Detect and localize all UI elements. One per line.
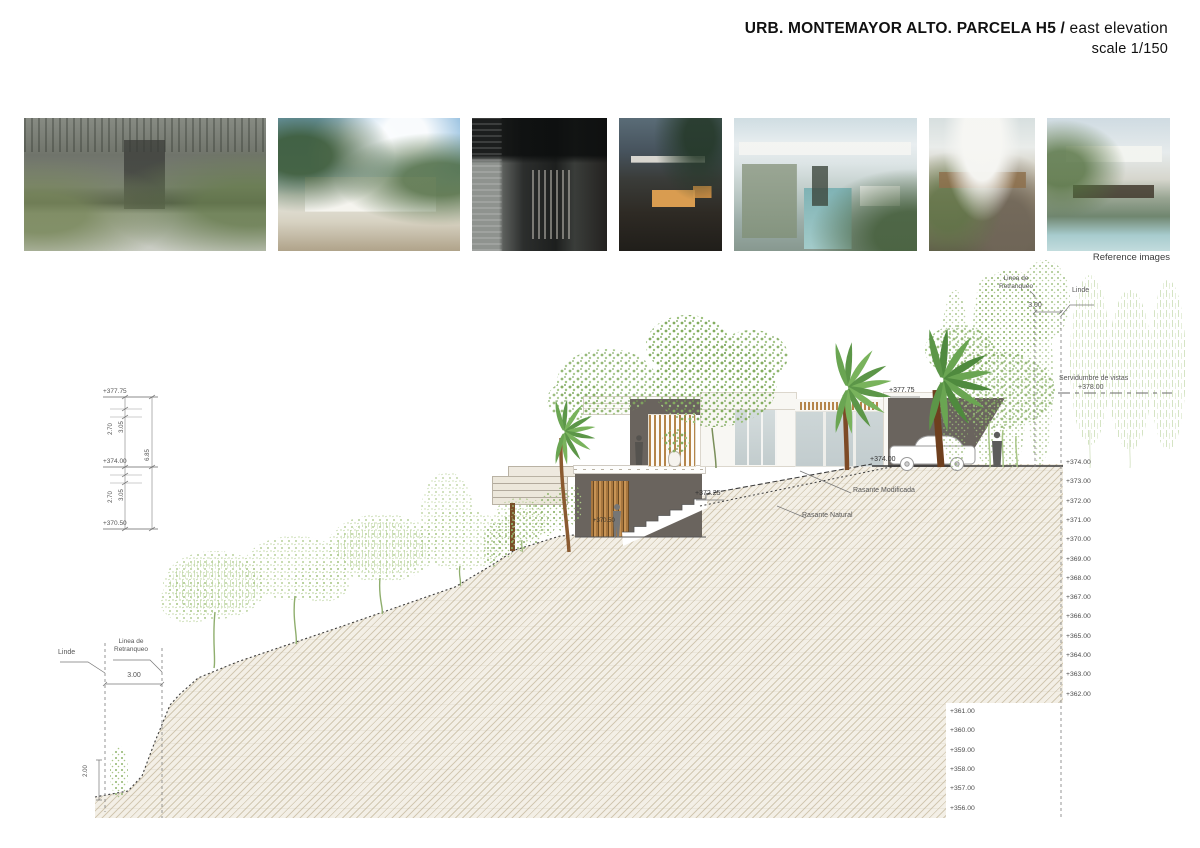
elevation-mark: +362.00	[1066, 691, 1091, 698]
reference-image-courtyard-pergola-entrance	[24, 118, 266, 251]
elevation-mark: +358.00	[950, 766, 975, 773]
dim-2-70-upper: 2.70	[108, 423, 114, 435]
tree-height-dimension: 2.00	[83, 765, 89, 777]
reference-caption: Reference images	[1093, 252, 1170, 263]
project-name: URB. MONTEMAYOR ALTO. PARCELA H5	[745, 20, 1056, 37]
boundary-trees	[1070, 275, 1186, 468]
rasante-natural-label: Rasante Natural	[802, 512, 853, 519]
elevation-mark: +366.00	[1066, 613, 1091, 620]
elevation-mark: +361.00	[950, 708, 975, 715]
dim-2-70-lower: 2.70	[108, 491, 114, 503]
linde-label-top: Linde	[1072, 287, 1089, 294]
drawing-sheet: URB. MONTEMAYOR ALTO. PARCELA H5 / east …	[0, 0, 1200, 848]
view-name: east elevation	[1070, 20, 1168, 37]
timber-slat-door	[591, 481, 629, 537]
reference-image-white-pavilion-palms	[278, 118, 460, 251]
retranqueo-label-top: Linea deRetranqueo	[982, 275, 1050, 291]
level-370-50-door: +370.50	[593, 518, 615, 524]
plant-pot	[668, 451, 681, 467]
servidumbre-level: +378.00	[1078, 384, 1104, 391]
elevation-mark: +374.00	[1066, 459, 1091, 466]
dim-3-05-lower: 3.05	[119, 489, 125, 501]
elevation-mark: +372.00	[1066, 498, 1091, 505]
reference-image-curved-roof-pool-villa	[1047, 118, 1170, 251]
retranqueo-label-bottom: Linea deRetranqueo	[100, 638, 162, 654]
chain-level-bottom: +370.50	[103, 520, 127, 527]
figure-right	[992, 432, 1002, 467]
elevation-mark: +357.00	[950, 785, 975, 792]
elevation-label-background	[946, 703, 1064, 820]
deck-support-post	[510, 503, 515, 551]
chain-level-top: +377.75	[103, 388, 127, 395]
cantilever-deck-lower-slab	[492, 476, 568, 505]
elevation-mark: +371.00	[1066, 517, 1091, 524]
dark-roof-band	[630, 399, 702, 415]
setback-dimension-top: 3.00	[1022, 302, 1048, 309]
dim-3-05-upper: 3.05	[119, 421, 125, 433]
elevation-mark: +356.00	[950, 805, 975, 812]
level-377-75: +377.75	[889, 387, 915, 394]
level-372-25: +372.25	[695, 490, 721, 497]
setback-dimension-bottom: 3.00	[118, 672, 150, 679]
rasante-modificada-label: Rasante Modificada	[853, 487, 915, 494]
elevation-mark: +364.00	[1066, 652, 1091, 659]
elevation-mark: +373.00	[1066, 478, 1091, 485]
elevation-mark: +369.00	[1066, 556, 1091, 563]
elevation-mark: +365.00	[1066, 633, 1091, 640]
reference-image-timber-house-dusk	[619, 118, 722, 251]
elevation-mark: +367.00	[1066, 594, 1091, 601]
elevation-mark: +359.00	[950, 747, 975, 754]
timber-transom-slats	[800, 402, 878, 410]
dim-6-85-total: 6.85	[145, 449, 151, 461]
carport-dark-roof	[888, 398, 1008, 467]
reference-image-stone-wall-pool-car	[734, 118, 917, 251]
reference-image-curved-roof-garden	[929, 118, 1035, 251]
reference-image-dark-stone-entrance	[472, 118, 607, 251]
elevation-mark: +360.00	[950, 727, 975, 734]
elevation-mark: +370.00	[1066, 536, 1091, 543]
glazed-door-center	[735, 410, 777, 465]
level-374: +374.00	[870, 456, 896, 463]
servidumbre-label: Servidumbre de vistas	[1059, 375, 1128, 382]
cypress-tree	[110, 746, 128, 798]
sheet-title: URB. MONTEMAYOR ALTO. PARCELA H5 / east …	[745, 20, 1168, 57]
elevation-mark: +363.00	[1066, 671, 1091, 678]
linde-label-bottom: Linde	[58, 649, 75, 656]
chain-level-mid: +374.00	[103, 458, 127, 465]
elevation-mark: +368.00	[1066, 575, 1091, 582]
scale-note: scale 1/150	[745, 41, 1168, 57]
